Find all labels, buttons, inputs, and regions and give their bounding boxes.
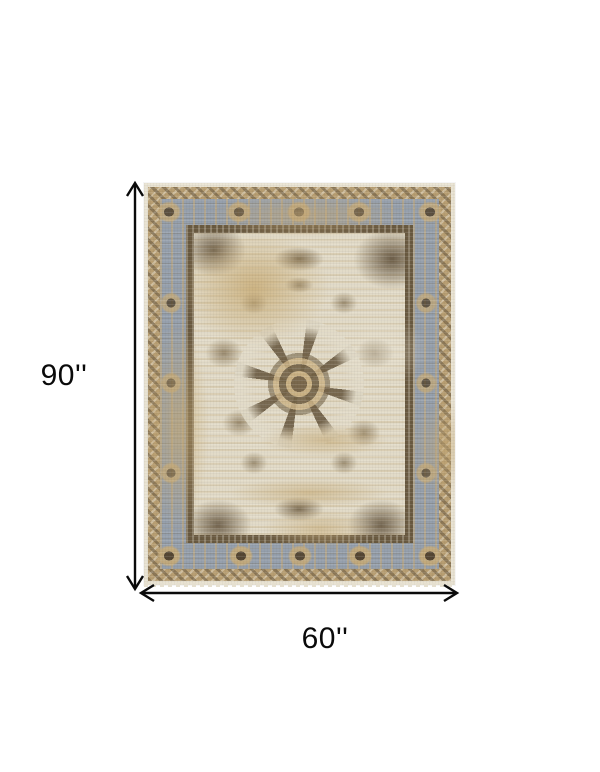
rug-weave-texture bbox=[144, 183, 455, 585]
width-dimension-label: 60'' bbox=[265, 621, 385, 657]
width-dimension-arrow bbox=[137, 581, 461, 605]
rug-image bbox=[144, 183, 455, 585]
product-dimension-diagram: 90'' 60'' bbox=[0, 0, 600, 772]
height-dimension-label: 90'' bbox=[24, 358, 104, 394]
height-dimension-arrow bbox=[120, 179, 150, 593]
